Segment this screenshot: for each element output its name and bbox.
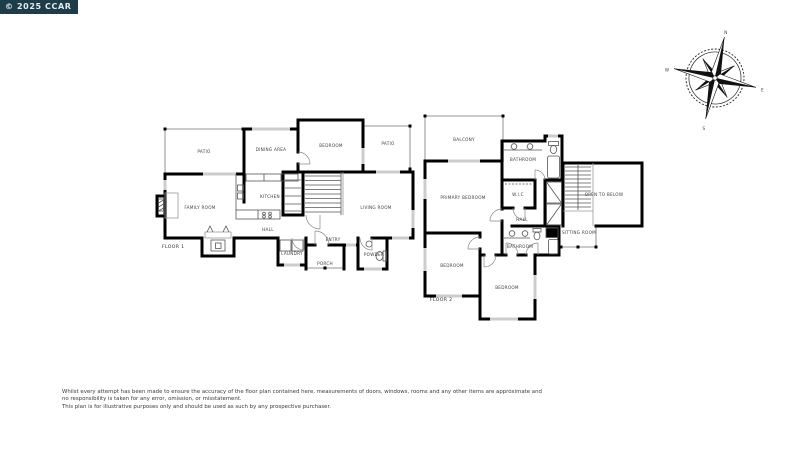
room-label-porch: PORCH — [317, 261, 333, 266]
room-label-sitting-room: SITTING ROOM — [562, 230, 596, 235]
room-label-hall-f2: HALL — [516, 217, 528, 222]
compass-north-label: N — [724, 30, 727, 35]
room-label-dining-area: DINING AREA — [256, 147, 287, 152]
floor-plan-page: { "page": { "copyright": "© 2025 CCAR" }… — [0, 0, 800, 450]
floor2-title: FLOOR 2 — [430, 297, 452, 303]
room-label-patio-left: PATIO — [197, 149, 211, 154]
room-label-bedroom-left: BEDROOM — [440, 263, 464, 268]
room-label-hall-f1: HALL — [262, 227, 274, 232]
room-label-kitchen: KITCHEN — [260, 194, 280, 199]
room-label-open-to-below: OPEN TO BELOW — [585, 192, 624, 197]
disclaimer-line-1: Whilst every attempt has been made to en… — [62, 389, 548, 404]
compass-star — [665, 28, 766, 129]
room-label-balcony: BALCONY — [453, 137, 475, 142]
floor1-walls — [157, 120, 413, 269]
compass-west-label: W — [665, 68, 669, 73]
floor1-fixtures — [159, 172, 387, 261]
compass-east-label: E — [761, 88, 764, 93]
room-label-wic: W.I.C — [512, 192, 524, 197]
room-label-powder: POWDER — [364, 252, 384, 257]
room-label-bathroom-top: BATHROOM — [510, 157, 536, 162]
compass-rose: N E S W — [655, 18, 775, 138]
copyright-badge: © 2025 CCAR — [0, 0, 78, 14]
room-label-primary-bedroom: PRIMARY BEDROOM — [440, 195, 485, 200]
room-label-family-room: FAMILY ROOM — [184, 205, 215, 210]
floor1-title: FLOOR 1 — [162, 244, 184, 250]
room-label-bedroom-bottom: BEDROOM — [495, 285, 519, 290]
compass-south-label: S — [703, 126, 706, 131]
room-label-laundry: LAUNDRY — [281, 251, 303, 256]
room-label-patio-right: PATIO — [381, 141, 395, 146]
disclaimer-line-2: This plan is for illustrative purposes o… — [62, 404, 548, 411]
floor1-plan: PATIO DINING AREA BEDROOM PATIO FAMILY R… — [148, 112, 418, 282]
compass-long-points — [665, 28, 766, 129]
room-label-bedroom-f1: BEDROOM — [319, 143, 343, 148]
room-label-bathroom-lower: BATHROOM — [507, 244, 533, 249]
disclaimer-text: Whilst every attempt has been made to en… — [62, 389, 548, 411]
floor2-plan: BALCONY BATHROOM PRIMARY BEDROOM W.I.C O… — [418, 103, 653, 325]
room-label-entry: ENTRY — [326, 237, 341, 242]
room-label-living-room: LIVING ROOM — [360, 205, 391, 210]
